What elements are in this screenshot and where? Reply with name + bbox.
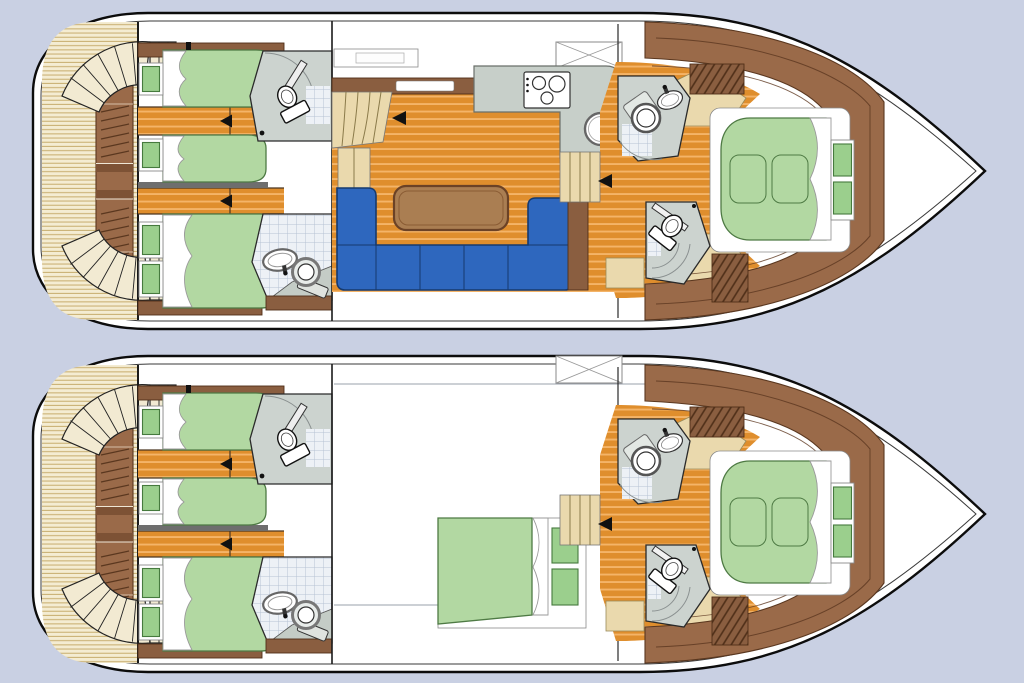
floorplan-canvas — [0, 0, 1024, 683]
upper-deck-plan — [33, 13, 985, 329]
lower-deck-plan — [33, 356, 985, 672]
yacht-deck-plans — [0, 0, 1024, 683]
